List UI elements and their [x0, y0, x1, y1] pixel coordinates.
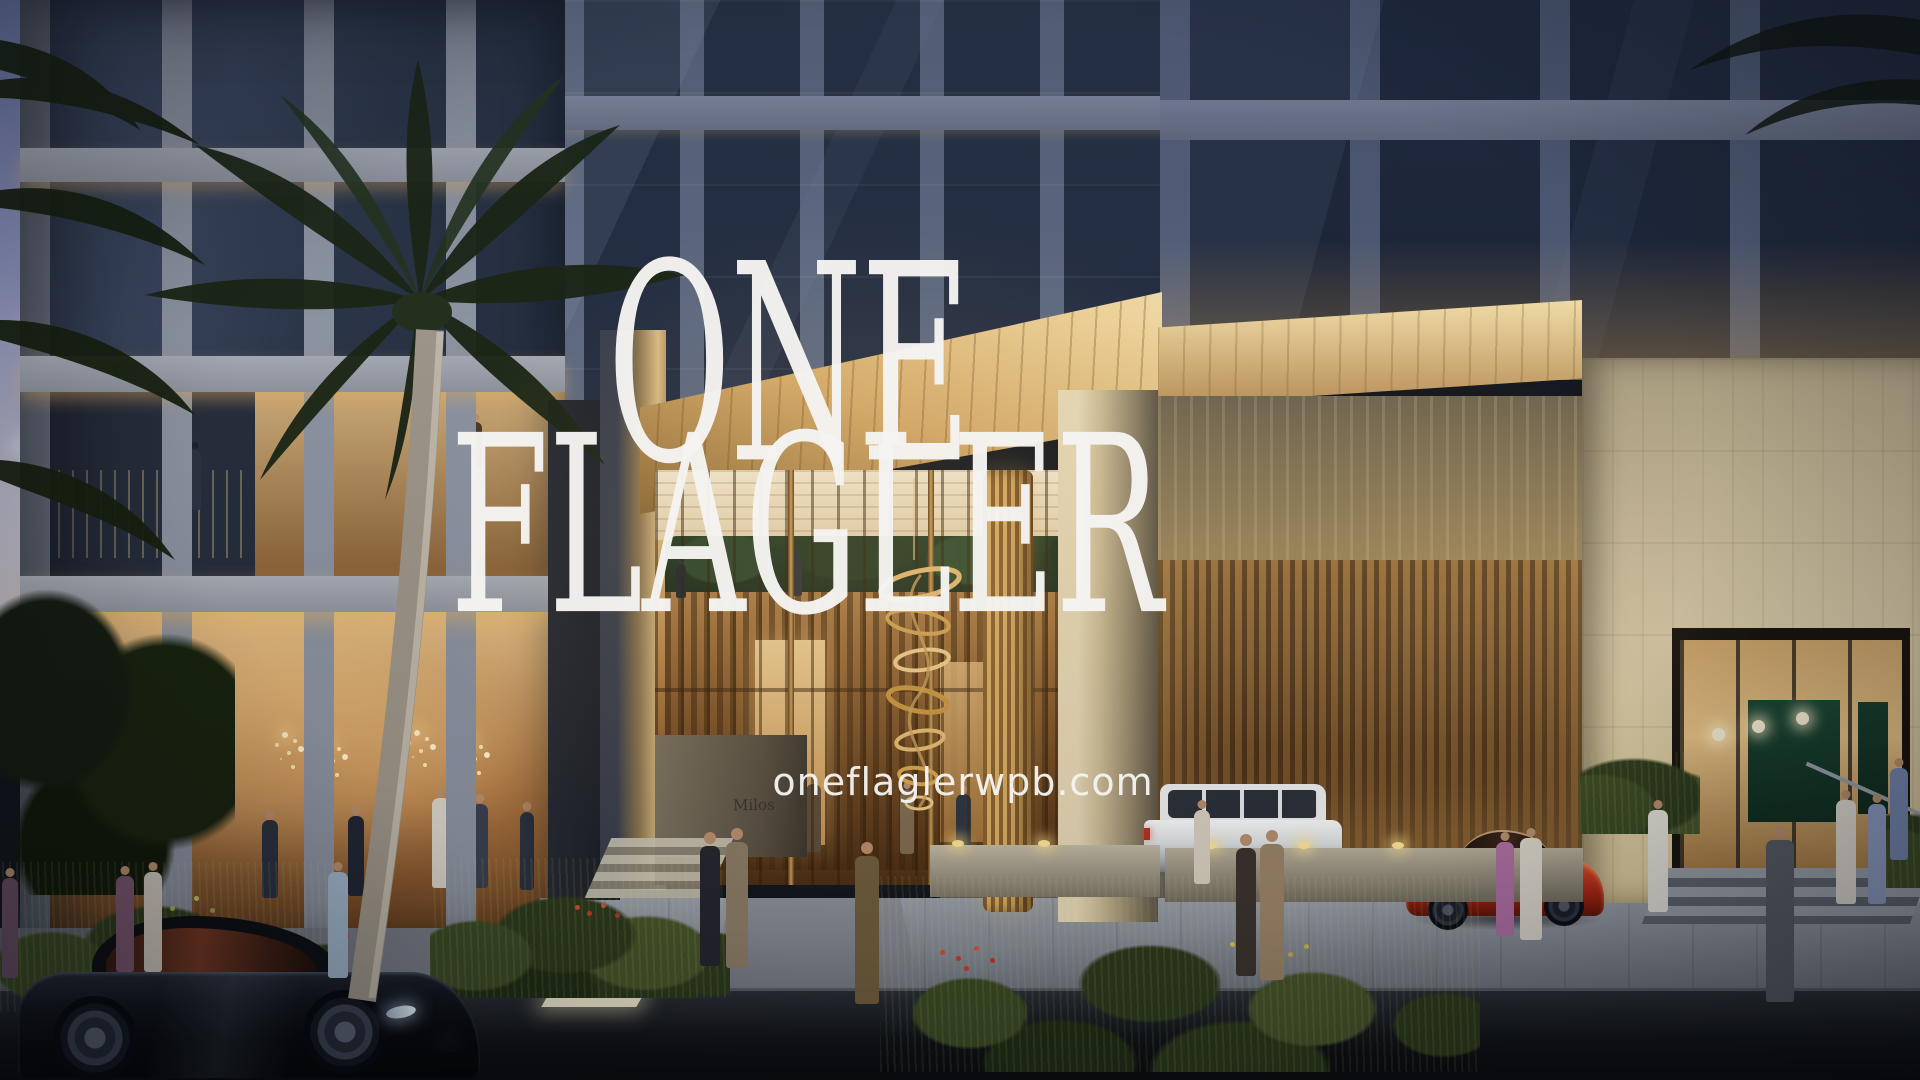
person — [1496, 842, 1514, 936]
person — [1868, 804, 1886, 904]
person — [2, 878, 18, 978]
person — [1194, 810, 1210, 884]
person — [726, 842, 748, 968]
title-line-2: FLAGLER — [450, 403, 1110, 649]
person — [1260, 844, 1284, 980]
person — [855, 856, 879, 1004]
person — [1766, 840, 1794, 1002]
person — [1890, 768, 1908, 860]
palm-fronds-left — [0, 40, 210, 600]
architectural-rendering-scene: Milos — [0, 0, 1920, 1080]
person — [1836, 800, 1856, 904]
palm-frond-top-right — [1690, 0, 1920, 150]
person — [1236, 848, 1256, 976]
person — [1648, 810, 1668, 912]
person — [1520, 838, 1542, 940]
website-url: oneflaglerwpb.com — [768, 760, 1158, 804]
